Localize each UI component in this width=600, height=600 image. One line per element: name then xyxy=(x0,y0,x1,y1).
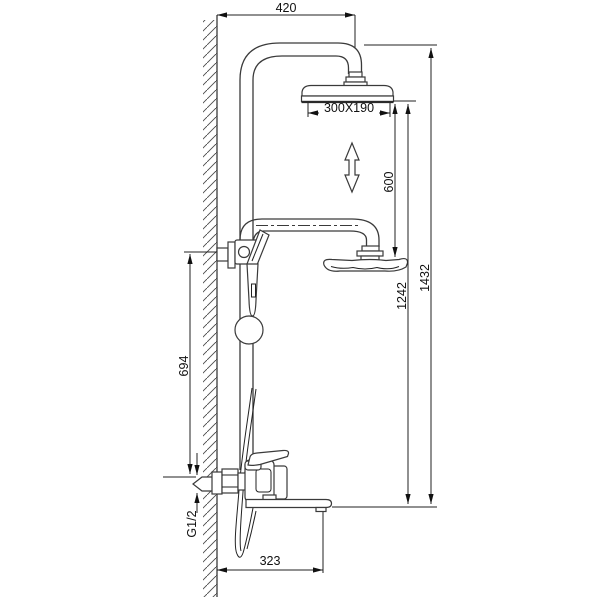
dim-g12-label: G1/2 xyxy=(185,510,199,537)
slider-ball xyxy=(235,316,263,344)
phantom-shower-head xyxy=(324,259,408,272)
drawing-page: 420 300X190 600 1242 1432 694 xyxy=(0,0,600,600)
adjust-arrow-icon xyxy=(345,143,359,192)
head-connector xyxy=(344,72,367,87)
bracket-stem xyxy=(217,248,228,261)
bracket-plate xyxy=(228,242,235,268)
dim-600: 600 xyxy=(382,104,396,257)
union-nut xyxy=(222,469,238,493)
dim-600-label: 600 xyxy=(382,172,396,193)
dim-1432: 1432 xyxy=(418,48,432,504)
dim-300x190-label: 300X190 xyxy=(324,101,374,115)
dim-420: 420 xyxy=(217,1,355,15)
dim-1242: 1242 xyxy=(395,104,409,504)
dim-323-label: 323 xyxy=(260,554,281,568)
wall xyxy=(203,15,217,597)
wall-hatching xyxy=(203,20,217,597)
dim-323: 323 xyxy=(217,554,323,570)
bath-spout xyxy=(246,500,332,508)
dim-694: 694 xyxy=(177,254,191,474)
dim-g12: G1/2 xyxy=(185,453,199,538)
wall-flange xyxy=(212,472,222,494)
dim-1432-label: 1432 xyxy=(418,264,432,292)
phantom-head-connector xyxy=(357,246,383,260)
overhead-shower-assembly xyxy=(302,72,394,102)
technical-drawing: 420 300X190 600 1242 1432 694 xyxy=(0,0,600,600)
dim-1242-label: 1242 xyxy=(395,282,409,310)
overhead-shower-head xyxy=(302,86,394,103)
dim-420-label: 420 xyxy=(276,1,297,15)
hand-shower-handle xyxy=(247,264,258,316)
dim-694-label: 694 xyxy=(177,356,191,377)
spout-outlet xyxy=(316,508,326,512)
hand-shower-unit xyxy=(217,230,269,344)
holder-screw xyxy=(239,247,250,258)
